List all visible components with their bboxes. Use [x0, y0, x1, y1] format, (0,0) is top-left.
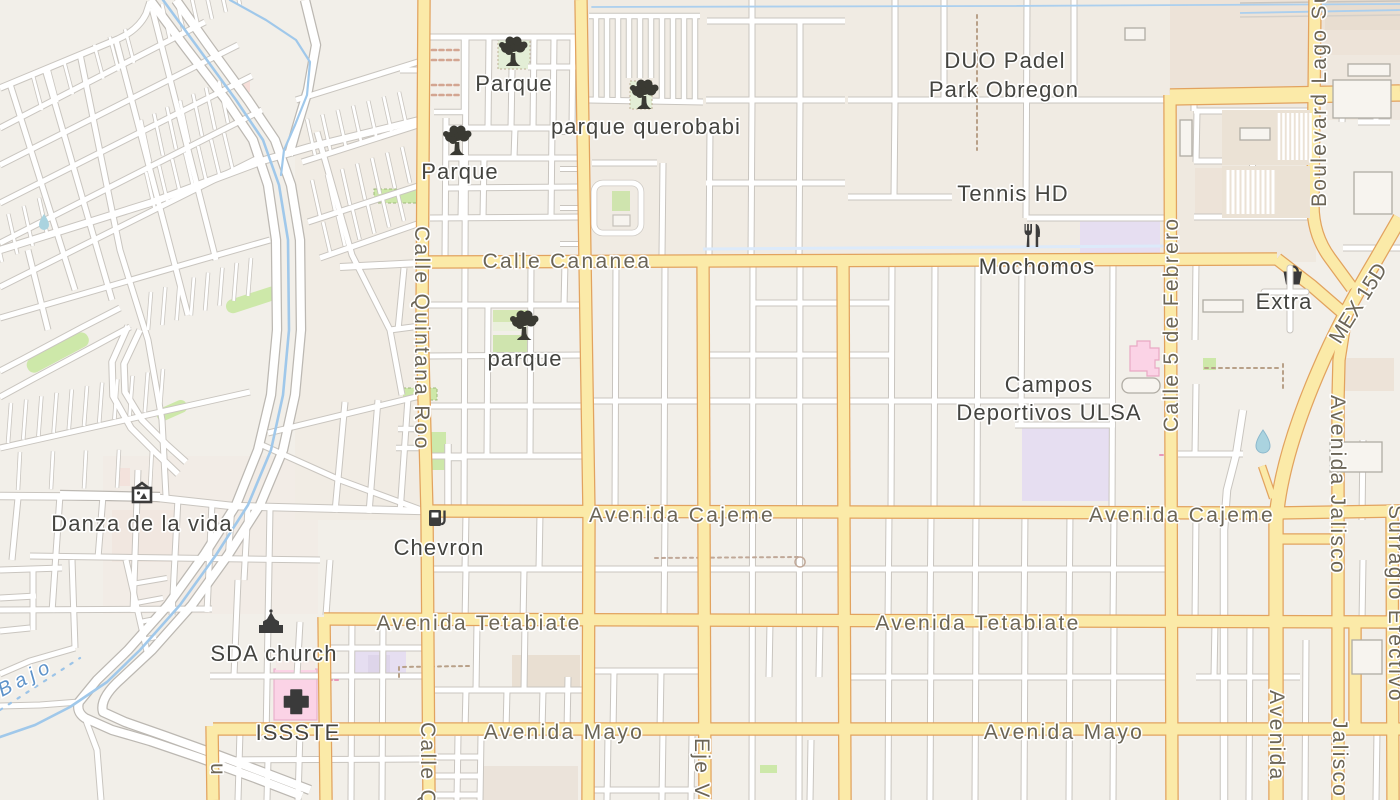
svg-text:Mochomos: Mochomos: [979, 254, 1095, 279]
svg-text:u: u: [206, 763, 229, 777]
svg-text:Extra: Extra: [1256, 289, 1313, 314]
svg-text:Calle 5 de Febrero: Calle 5 de Febrero: [1160, 217, 1183, 432]
svg-text:SDA church: SDA church: [210, 641, 337, 666]
svg-text:Sufragio Efectivo: Sufragio Efectivo: [1384, 505, 1400, 703]
svg-text:Danza de la vida: Danza de la vida: [51, 511, 232, 536]
svg-text:Park Obregon: Park Obregon: [929, 77, 1079, 102]
svg-text:Calle Quintana Roo: Calle Quintana Roo: [416, 722, 439, 800]
svg-text:Avenida Cajeme: Avenida Cajeme: [1089, 504, 1275, 527]
svg-text:Deportivos ULSA: Deportivos ULSA: [956, 400, 1141, 425]
svg-text:Avenida Tetabiate: Avenida Tetabiate: [376, 612, 581, 635]
svg-text:DUO Padel: DUO Padel: [944, 48, 1065, 73]
svg-text:Tennis HD: Tennis HD: [957, 181, 1068, 206]
svg-text:Avenida Mayo: Avenida Mayo: [984, 721, 1144, 744]
svg-text:Jalisco: Jalisco: [1328, 718, 1351, 798]
svg-text:Calle Cananea: Calle Cananea: [483, 250, 652, 273]
svg-text:Boulevard Lago Su: Boulevard Lago Su: [1308, 0, 1331, 207]
svg-text:Eje Vicente: Eje Vicente: [690, 738, 713, 800]
svg-text:Avenida Cajeme: Avenida Cajeme: [589, 504, 775, 527]
svg-text:Parque: Parque: [475, 71, 553, 96]
svg-text:parque: parque: [487, 346, 562, 371]
svg-text:Avenida Mayo: Avenida Mayo: [484, 721, 644, 744]
svg-text:Calle Quintana Roo: Calle Quintana Roo: [410, 226, 433, 451]
svg-text:Avenida: Avenida: [1265, 690, 1288, 782]
svg-text:Avenida Jalisco: Avenida Jalisco: [1326, 395, 1349, 575]
svg-text:parque querobabi: parque querobabi: [551, 114, 741, 139]
svg-text:Avenida Tetabiate: Avenida Tetabiate: [875, 612, 1080, 635]
svg-text:ISSSTE: ISSSTE: [256, 720, 341, 745]
svg-text:Parque: Parque: [421, 159, 499, 184]
svg-text:Campos: Campos: [1005, 372, 1094, 397]
svg-text:Chevron: Chevron: [394, 535, 485, 560]
